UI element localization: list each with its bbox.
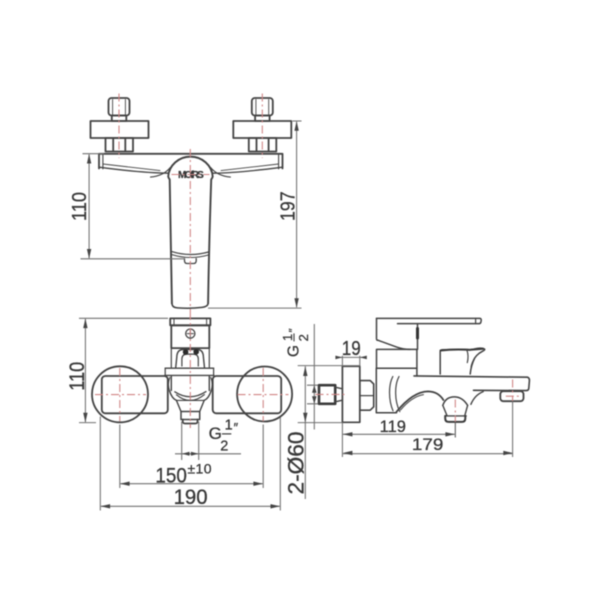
svg-text:190: 190 bbox=[174, 486, 208, 509]
svg-text:179: 179 bbox=[412, 435, 444, 454]
svg-text:110: 110 bbox=[66, 362, 89, 391]
svg-text:″: ″ bbox=[234, 421, 239, 435]
svg-text:150: 150 bbox=[155, 464, 187, 487]
svg-text:197: 197 bbox=[277, 191, 300, 221]
svg-text:1: 1 bbox=[225, 418, 233, 434]
svg-text:2: 2 bbox=[220, 439, 228, 455]
svg-text:G: G bbox=[285, 345, 302, 357]
svg-text:2-Ø60: 2-Ø60 bbox=[284, 432, 309, 495]
svg-text:119: 119 bbox=[380, 417, 406, 436]
svg-text:MOfRS: MOfRS bbox=[178, 170, 204, 181]
svg-text:″: ″ bbox=[288, 328, 300, 332]
svg-text:1: 1 bbox=[281, 334, 295, 341]
svg-text:±10: ±10 bbox=[188, 461, 212, 477]
svg-text:2: 2 bbox=[296, 334, 311, 341]
svg-text:19: 19 bbox=[342, 338, 361, 360]
svg-text:110: 110 bbox=[69, 192, 91, 221]
